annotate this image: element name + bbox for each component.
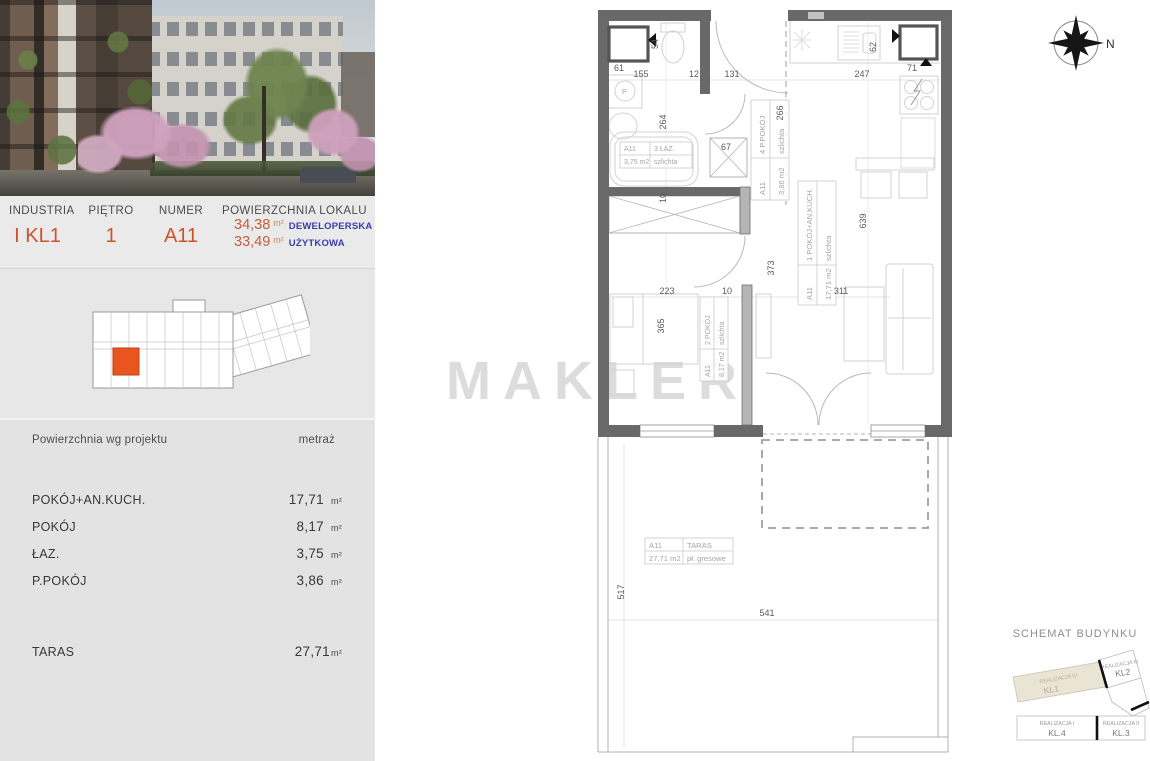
floor-overview-map	[85, 278, 310, 413]
room-area: 3,86	[268, 573, 324, 588]
info-panel: INDUSTRIA I KL1 PIĘTRO 1 NUMER A11 POWIE…	[0, 0, 375, 761]
header-value-industria: I KL1	[9, 217, 80, 248]
area-unit: m²	[273, 218, 284, 228]
compass-rose: N	[1042, 12, 1120, 74]
header-label-powierzchnia: POWIERZCHNIA LOKALU	[220, 196, 375, 217]
svg-text:REALIZACJA II: REALIZACJA II	[1103, 721, 1139, 727]
table-row: P.POKÓJ 3,86 m²	[32, 573, 357, 600]
svg-text:2 POKÓJ: 2 POKÓJ	[703, 315, 712, 345]
svg-text:54: 54	[650, 39, 660, 49]
area-row-deweloperska: 34,38m²DEWELOPERSKA	[220, 217, 375, 234]
area-value: 33,49	[234, 234, 270, 250]
svg-text:A11: A11	[758, 182, 767, 195]
svg-text:4 P.POKÓJ: 4 P.POKÓJ	[758, 116, 767, 154]
svg-text:10: 10	[722, 286, 732, 296]
photo-layer	[262, 86, 266, 172]
svg-text:61: 61	[614, 63, 624, 73]
room-name: ŁAZ.	[32, 547, 268, 561]
room-area: 17,71	[268, 492, 324, 507]
room-name: TARAS	[32, 645, 274, 659]
washer-label: P	[622, 89, 627, 96]
area-table-header: Powierzchnia wg projektu metraż	[32, 434, 357, 446]
area-kind: DEWELOPERSKA	[289, 221, 373, 232]
svg-text:8,17 m2: 8,17 m2	[719, 352, 726, 377]
header-label-industria: INDUSTRIA	[9, 196, 80, 217]
svg-text:REALIZACJA I: REALIZACJA I	[1040, 721, 1075, 727]
terrace-boundary	[598, 437, 948, 752]
svg-text:155: 155	[633, 69, 648, 79]
room-unit: m²	[330, 648, 357, 658]
svg-text:1 POKÓJ+AN.KUCH.: 1 POKÓJ+AN.KUCH.	[805, 188, 814, 261]
svg-text:3,75 m2: 3,75 m2	[624, 159, 649, 166]
room-unit: m²	[324, 577, 357, 587]
highlighted-unit-a11	[113, 348, 139, 375]
svg-text:3 ŁAZ.: 3 ŁAZ.	[654, 146, 675, 153]
svg-text:266: 266	[775, 105, 785, 120]
svg-text:365: 365	[656, 318, 666, 333]
photo-layer	[78, 88, 223, 186]
svg-text:10: 10	[658, 193, 668, 203]
svg-text:17,71 m2: 17,71 m2	[824, 268, 833, 300]
schema-wing-kl4-kl3: REALIZACJA I KL.4 REALIZACJA II KL.3	[1017, 716, 1145, 740]
header-value-pietro: 1	[80, 217, 142, 248]
schema-title: SCHEMAT BUDYNKU	[1000, 628, 1150, 640]
room-label-laz: A11 3 ŁAZ. 3,75 m2 szlichta	[620, 142, 692, 168]
area-row-uzytkowa: 33,49m²UŻYTKOWA	[220, 234, 375, 251]
room-label-pokoj: A11 2 POKÓJ 8,17 m2 szlichta	[700, 297, 728, 381]
svg-text:A11: A11	[624, 146, 636, 153]
svg-text:szlichta: szlichta	[719, 322, 726, 345]
svg-text:264: 264	[658, 114, 668, 129]
svg-text:62: 62	[868, 42, 878, 52]
svg-text:A11: A11	[649, 541, 662, 550]
schema-wing-kl1: REALIZACJA IV KL1	[1013, 662, 1105, 702]
building-photo	[0, 0, 375, 196]
photo-layer	[288, 92, 375, 184]
svg-text:639: 639	[858, 213, 868, 228]
svg-text:517: 517	[616, 584, 626, 599]
svg-text:311: 311	[834, 286, 848, 296]
room-area: 8,17	[268, 519, 324, 534]
col-metraz-label: metraż	[251, 434, 357, 446]
area-kind: UŻYTKOWA	[289, 238, 345, 249]
header-label-pietro: PIĘTRO	[80, 196, 142, 217]
building-schema: SCHEMAT BUDYNKU REALIZACJA III KL2 REALI…	[1000, 628, 1150, 757]
svg-text:A11: A11	[805, 287, 814, 300]
area-unit: m²	[273, 235, 284, 245]
room-unit: m²	[324, 496, 357, 506]
svg-text:373: 373	[766, 260, 776, 275]
svg-text:27,71 m2: 27,71 m2	[649, 554, 681, 563]
svg-text:541: 541	[759, 608, 774, 618]
room-name: P.POKÓJ	[32, 574, 268, 588]
room-name: POKÓJ	[32, 520, 268, 534]
room-unit: m²	[324, 550, 357, 560]
header-value-numer: A11	[142, 217, 220, 248]
table-row: POKÓJ 8,17 m²	[32, 519, 357, 546]
header-label-numer: NUMER	[142, 196, 220, 217]
unit-header: INDUSTRIA I KL1 PIĘTRO 1 NUMER A11 POWIE…	[0, 196, 375, 269]
svg-text:pł. gresowe: pł. gresowe	[687, 554, 726, 563]
north-label: N	[1106, 37, 1115, 51]
col-name-label: Powierzchnia wg projektu	[32, 434, 251, 446]
svg-text:szlichta: szlichta	[654, 159, 677, 166]
windows	[640, 425, 925, 437]
room-area: 27,71	[274, 644, 330, 659]
svg-text:247: 247	[854, 69, 869, 79]
svg-text:szlichta: szlichta	[777, 128, 786, 154]
area-table: Powierzchnia wg projektu metraż POKÓJ+AN…	[0, 418, 375, 761]
svg-text:131: 131	[724, 69, 739, 79]
svg-text:3,86 m2: 3,86 m2	[777, 168, 786, 195]
terrace-dashed-zone	[762, 440, 928, 528]
room-area: 3,75	[268, 546, 324, 561]
svg-text:KL.3: KL.3	[1112, 728, 1130, 738]
area-value: 34,38	[234, 217, 270, 233]
svg-text:12: 12	[689, 69, 699, 79]
svg-text:KL.4: KL.4	[1048, 728, 1066, 738]
room-label-taras: A11 TARAS 27,71 m2 pł. gresowe	[645, 538, 733, 564]
table-row: ŁAZ. 3,75 m²	[32, 546, 357, 573]
room-label-pokoj-kuch: A11 1 POKÓJ+AN.KUCH. 17,71 m2 szlichta	[798, 181, 836, 305]
svg-text:TARAS: TARAS	[687, 541, 712, 550]
svg-text:A11: A11	[705, 365, 712, 377]
table-row-taras: TARAS 27,71 m²	[32, 644, 357, 671]
svg-text:71: 71	[907, 63, 917, 73]
table-row: POKÓJ+AN.KUCH. 17,71 m²	[32, 492, 357, 519]
svg-text:67: 67	[721, 142, 731, 152]
svg-text:szlichta: szlichta	[824, 235, 833, 261]
compass-main-star	[1048, 15, 1104, 71]
svg-text:223: 223	[659, 286, 674, 296]
room-unit: m²	[324, 523, 357, 533]
room-name: POKÓJ+AN.KUCH.	[32, 493, 268, 507]
